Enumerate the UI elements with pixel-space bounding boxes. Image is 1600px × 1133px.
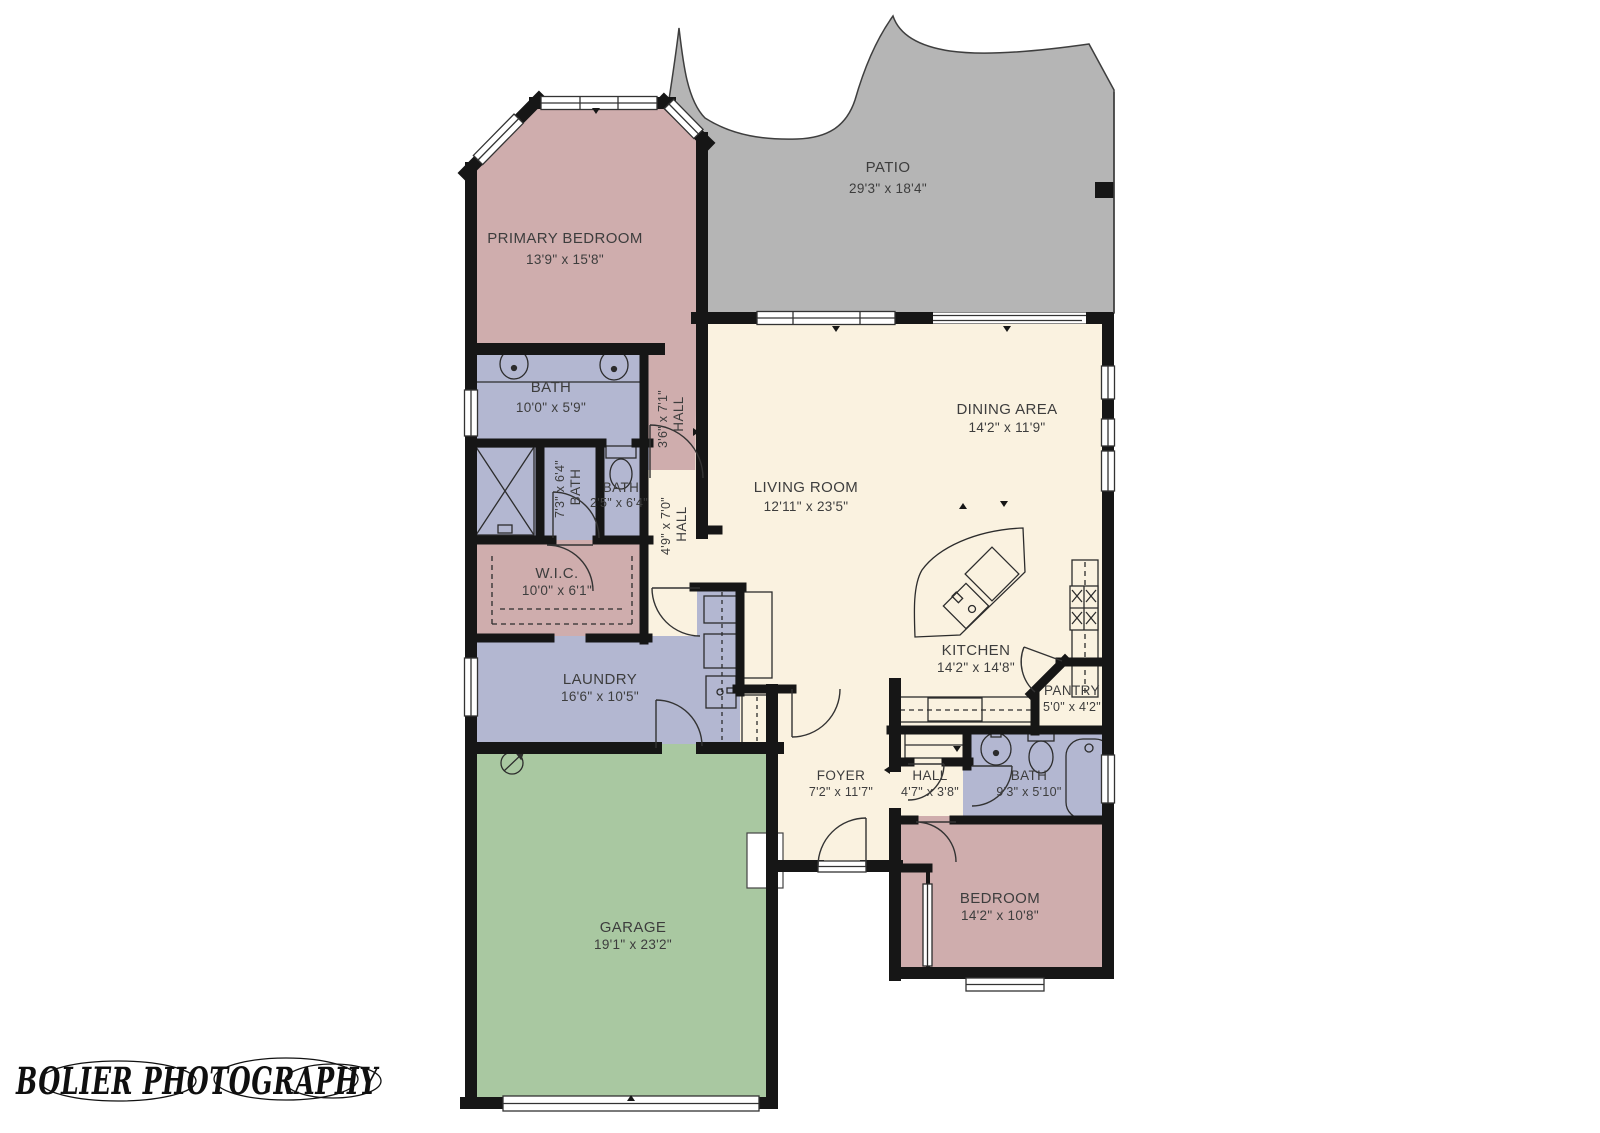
bath-primary-floor xyxy=(471,349,647,445)
sink-drain-icon xyxy=(512,366,517,371)
label-hall-primary-dims: 3'6" x 7'1" xyxy=(656,390,670,448)
bedroom-window xyxy=(966,978,1044,991)
watermark: BOLIER PHOTOGRAPHY xyxy=(15,1058,381,1103)
label-garage-name: GARAGE xyxy=(600,919,667,936)
label-bath-toilet-name: BATH xyxy=(603,480,640,495)
label-living-dims: 12'11" x 23'5" xyxy=(764,499,849,514)
label-bath-mid-name: BATH xyxy=(568,469,583,506)
dining-windows xyxy=(1102,366,1115,491)
label-kitchen-dims: 14'2" x 14'8" xyxy=(937,660,1015,675)
sink-drain-icon xyxy=(612,367,617,372)
label-laundry-dims: 16'6" x 10'5" xyxy=(561,689,639,704)
label-foyer-dims: 7'2" x 11'7" xyxy=(809,785,873,799)
label-bedroom-dims: 14'2" x 10'8" xyxy=(961,908,1039,923)
label-hall-mid-name: HALL xyxy=(674,506,689,541)
label-bath-primary-name: BATH xyxy=(531,379,572,396)
label-hall-east-name: HALL xyxy=(912,768,947,783)
label-bath-primary-dims: 10'0" x 5'9" xyxy=(516,400,586,415)
label-wic-dims: 10'0" x 6'1" xyxy=(522,583,592,598)
label-laundry-name: LAUNDRY xyxy=(563,671,637,688)
label-bath-east-dims: 9'3" x 5'10" xyxy=(996,785,1061,799)
watermark-text: BOLIER PHOTOGRAPHY xyxy=(15,1059,379,1103)
floorplan-svg: PATIO 29'3" x 18'4" PRIMARY BEDROOM 13'9… xyxy=(0,0,1600,1133)
living-window xyxy=(757,312,895,325)
patio-slider-door xyxy=(933,313,1086,324)
label-pantry-dims: 5'0" x 4'2" xyxy=(1043,700,1101,714)
sink-drain-icon xyxy=(994,751,999,756)
label-hall-east-dims: 4'7" x 3'8" xyxy=(901,785,959,799)
label-bath-east-name: BATH xyxy=(1011,768,1048,783)
patio-post xyxy=(1095,182,1114,198)
label-patio-dims: 29'3" x 18'4" xyxy=(849,181,927,196)
label-primary-bedroom-dims: 13'9" x 15'8" xyxy=(526,252,604,267)
label-bath-mid-dims: 7'3" x 6'4" xyxy=(553,460,567,518)
label-dining-dims: 14'2" x 11'9" xyxy=(969,420,1046,435)
label-bedroom-name: BEDROOM xyxy=(960,890,1040,907)
label-patio-name: PATIO xyxy=(866,159,911,176)
label-garage-dims: 19'1" x 23'2" xyxy=(594,937,672,952)
label-bath-toilet-dims: 2'5" x 6'4" xyxy=(590,496,648,510)
floorplan-page: PATIO 29'3" x 18'4" PRIMARY BEDROOM 13'9… xyxy=(0,0,1600,1133)
front-door-threshold xyxy=(818,861,866,872)
label-dining-name: DINING AREA xyxy=(956,401,1057,418)
label-primary-bedroom-name: PRIMARY BEDROOM xyxy=(487,230,642,247)
label-hall-primary-name: HALL xyxy=(671,396,686,431)
label-pantry-name: PANTRY xyxy=(1044,683,1100,698)
label-hall-mid-dims: 4'9" x 7'0" xyxy=(659,497,673,555)
label-kitchen-name: KITCHEN xyxy=(942,642,1011,659)
label-foyer-name: FOYER xyxy=(817,768,866,783)
label-wic-name: W.I.C. xyxy=(535,565,578,582)
label-living-name: LIVING ROOM xyxy=(754,479,858,496)
